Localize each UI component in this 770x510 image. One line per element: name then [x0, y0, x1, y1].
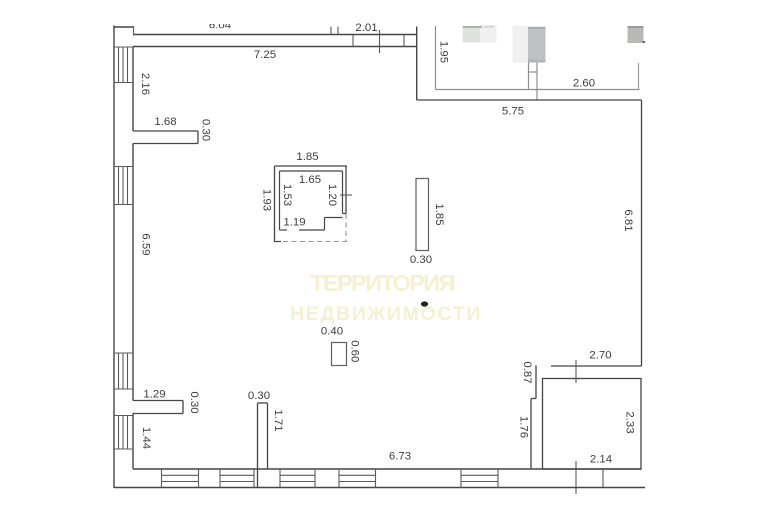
- svg-text:2.01: 2.01: [355, 22, 377, 34]
- svg-text:6.04: 6.04: [209, 20, 231, 32]
- svg-text:1.95: 1.95: [438, 41, 450, 63]
- svg-text:1.85: 1.85: [296, 151, 318, 163]
- svg-text:0.: 0.: [349, 340, 361, 350]
- svg-text:1.93: 1.93: [261, 189, 273, 211]
- svg-text:60: 60: [349, 350, 361, 363]
- svg-text:1.71: 1.71: [272, 409, 284, 431]
- svg-text:6.81: 6.81: [622, 209, 634, 231]
- svg-text:1.53: 1.53: [281, 184, 293, 206]
- svg-text:0.30: 0.30: [248, 390, 270, 402]
- svg-text:0.30: 0.30: [410, 254, 432, 266]
- svg-text:0.87: 0.87: [521, 361, 533, 383]
- svg-text:1.44: 1.44: [140, 427, 152, 449]
- svg-text:1.76: 1.76: [518, 416, 530, 438]
- svg-text:0.30: 0.30: [188, 391, 200, 413]
- svg-text:6.59: 6.59: [140, 233, 152, 255]
- svg-text:1.65: 1.65: [299, 174, 321, 186]
- svg-text:0.30: 0.30: [200, 119, 212, 141]
- svg-text:1.68: 1.68: [154, 116, 176, 128]
- svg-text:2.60: 2.60: [573, 78, 595, 90]
- svg-text:ТЕРРИТОРИЯ: ТЕРРИТОРИЯ: [310, 270, 454, 296]
- svg-text:1.19: 1.19: [283, 217, 305, 229]
- svg-text:2.33: 2.33: [624, 411, 636, 433]
- svg-text:5.75: 5.75: [502, 106, 524, 118]
- svg-text:2.16: 2.16: [139, 73, 151, 95]
- svg-text:1.20: 1.20: [326, 184, 338, 206]
- svg-text:НЕДВИЖИМОСТИ: НЕДВИЖИМОСТИ: [290, 303, 482, 325]
- svg-text:7.25: 7.25: [254, 49, 276, 61]
- svg-text:1.85: 1.85: [433, 203, 445, 225]
- svg-text:2.14: 2.14: [590, 454, 612, 466]
- svg-text:2.70: 2.70: [589, 350, 611, 362]
- svg-text:1.29: 1.29: [143, 389, 165, 401]
- svg-text:6.73: 6.73: [389, 451, 411, 463]
- svg-text:0.40: 0.40: [321, 326, 343, 338]
